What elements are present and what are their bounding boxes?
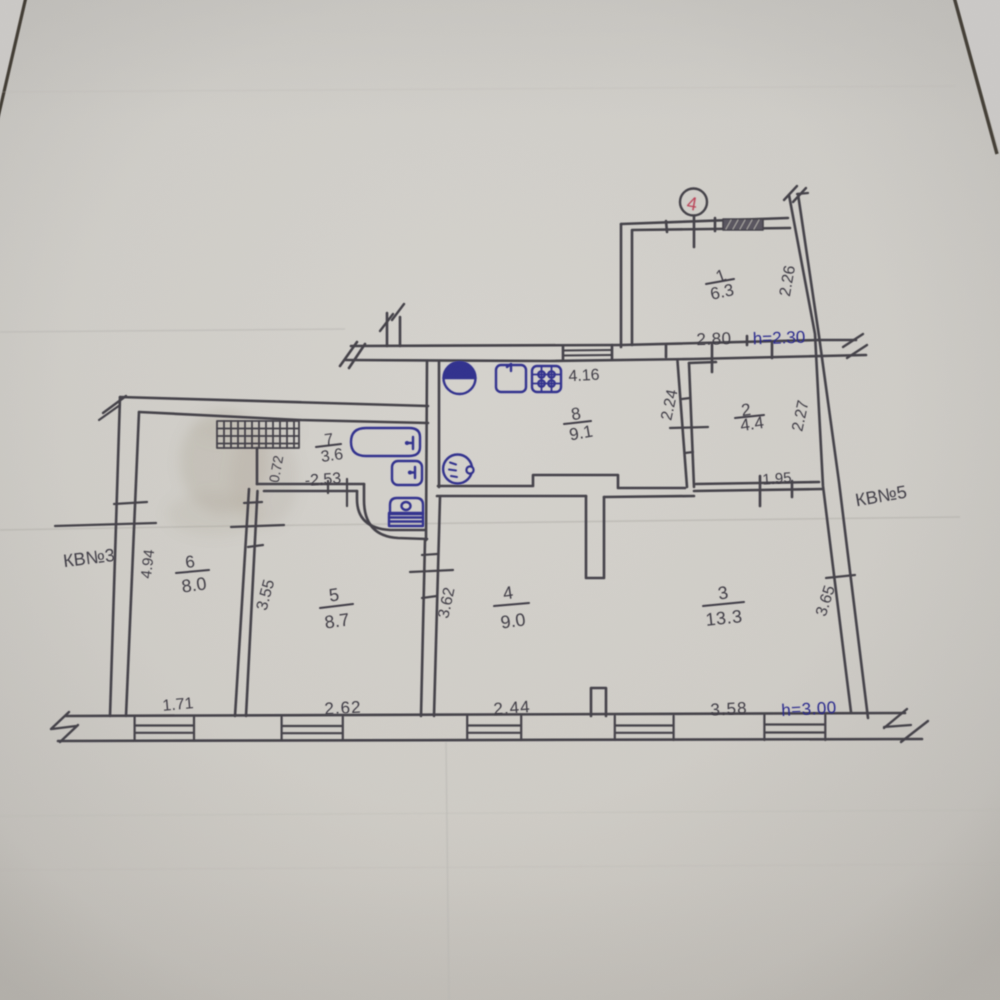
svg-text:-2.53: -2.53 [304, 470, 342, 490]
svg-text:1.71: 1.71 [162, 695, 195, 715]
svg-text:8.0: 8.0 [180, 573, 208, 596]
svg-text:4.94: 4.94 [138, 548, 158, 579]
svg-text:4.4: 4.4 [739, 413, 765, 435]
svg-text:9.0: 9.0 [499, 609, 527, 632]
svg-text:8.7: 8.7 [323, 609, 351, 632]
svg-text:2.44: 2.44 [493, 697, 531, 719]
svg-text:3.58: 3.58 [710, 699, 748, 720]
svg-text:4.16: 4.16 [568, 367, 600, 386]
svg-text:9.1: 9.1 [568, 422, 595, 445]
svg-text:h=3.00: h=3.00 [781, 698, 837, 720]
svg-text:3.6: 3.6 [320, 446, 344, 466]
svg-text:h=2.30: h=2.30 [752, 328, 805, 349]
svg-text:2.62: 2.62 [324, 698, 362, 719]
svg-text:13.3: 13.3 [705, 606, 744, 630]
svg-text:2.80: 2.80 [696, 329, 732, 349]
svg-text:1.95: 1.95 [762, 470, 792, 489]
